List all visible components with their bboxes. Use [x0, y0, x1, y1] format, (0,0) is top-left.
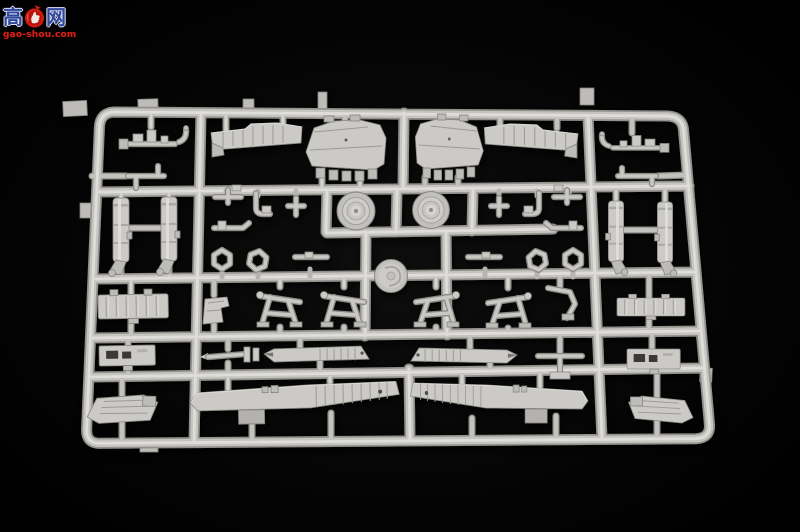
watermark-char-left: 高 — [3, 6, 23, 28]
part-vented-panel-left — [99, 345, 155, 371]
photo-stage: 高 网 gao-shou.com — [0, 0, 800, 532]
part-bent-lever — [548, 288, 575, 320]
part-strut-cylinder-3 — [606, 201, 628, 276]
watermark-char-right: 网 — [46, 6, 66, 28]
part-wing-panel-left — [190, 381, 400, 425]
part-wing-panel-right — [410, 383, 588, 423]
part-strut-cylinder-4 — [655, 202, 677, 277]
part-corner-flap-left — [87, 393, 158, 425]
part-linkage-cluster-left — [214, 185, 327, 277]
part-corner-flap-right — [629, 396, 693, 423]
sprue-photo — [0, 0, 800, 532]
part-aframe-3 — [414, 292, 460, 328]
sprue — [63, 88, 713, 452]
part-ribbed-bulkhead-left — [98, 289, 169, 324]
part-aframe-2 — [321, 292, 367, 328]
part-ribbed-bulkhead-right — [617, 294, 685, 320]
site-watermark: 高 网 gao-shou.com — [3, 4, 83, 40]
part-cockpit-sidewall-right — [484, 124, 578, 158]
part-cockpit-floor-right — [415, 114, 483, 180]
part-link-bracket-left — [128, 166, 164, 188]
watermark-url: gao-shou.com — [3, 30, 83, 40]
part-aframe-4 — [486, 293, 532, 329]
part-wheel-left — [337, 192, 375, 230]
part-mold-disc — [375, 260, 408, 293]
part-cockpit-floor-left — [306, 115, 386, 181]
part-aframe-1 — [257, 292, 303, 328]
part-strut-cylinder-2 — [157, 197, 181, 276]
part-strut-cylinder-1 — [109, 198, 133, 277]
part-flap-section-left — [264, 346, 369, 362]
part-seat — [203, 297, 229, 324]
part-wheel-right — [413, 192, 450, 229]
part-flap-section-right — [411, 348, 517, 363]
watermark-logo-row: 高 网 — [3, 4, 83, 30]
thumbs-up-badge-icon — [24, 4, 45, 30]
